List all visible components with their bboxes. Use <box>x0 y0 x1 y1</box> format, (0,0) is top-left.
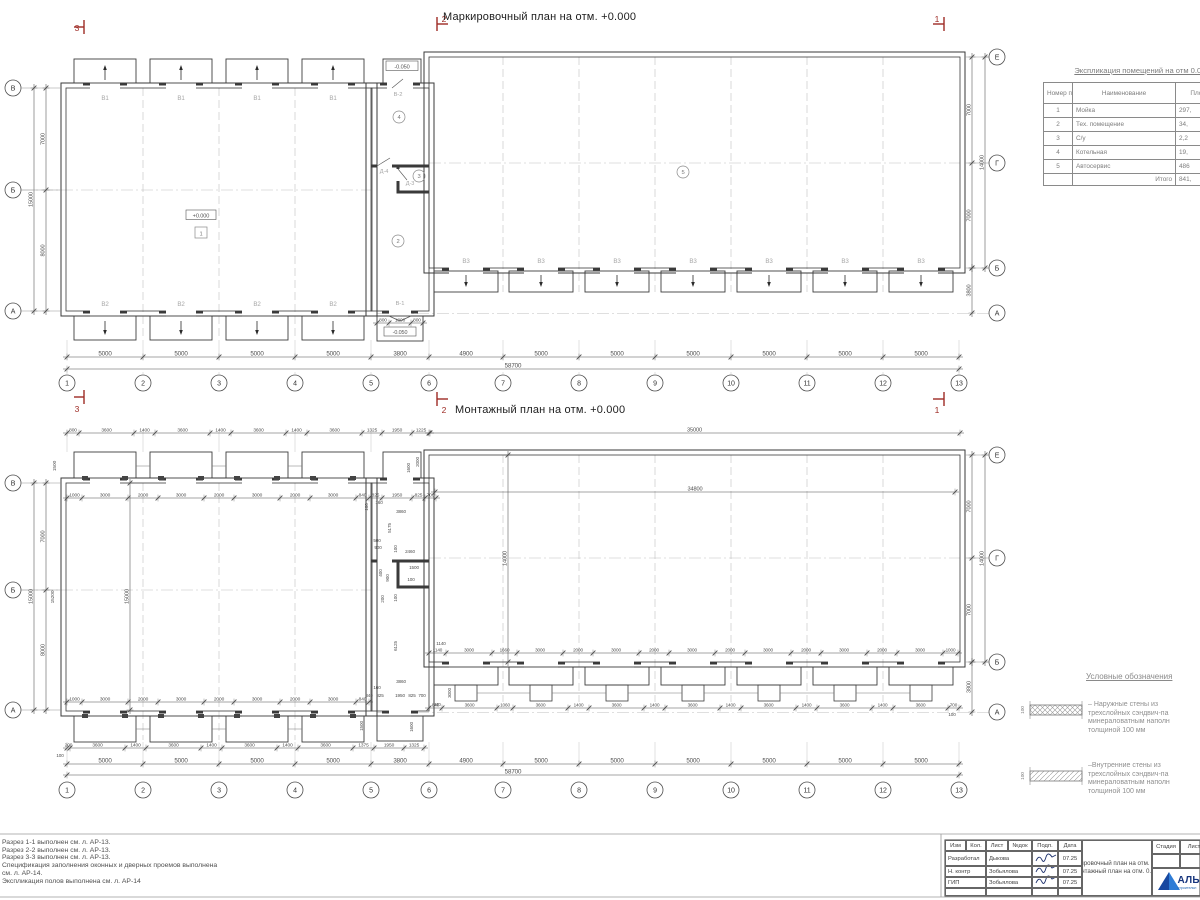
legend-text-line: минераловатным наполн <box>1088 779 1170 788</box>
jamb <box>348 311 355 314</box>
section-number: 1 <box>935 14 940 24</box>
explication-cell: 2 <box>1044 118 1073 132</box>
dimension-text: 3860 <box>396 679 406 684</box>
wall-seg <box>371 560 377 563</box>
dimension-text: 2000 <box>725 647 735 652</box>
jamb <box>897 268 904 271</box>
grid-marker-label: 12 <box>879 788 887 795</box>
dimension-text: 1660 <box>500 647 510 652</box>
porch <box>813 667 877 685</box>
titleblock-header-1: Кол. <box>966 840 986 851</box>
dimension-text: 3800 <box>966 284 972 296</box>
dimension-text: 5000 <box>98 757 112 764</box>
jamb <box>235 311 242 314</box>
section-number: 3 <box>75 23 80 33</box>
explication-cell: 4 <box>1044 146 1073 160</box>
titleblock-name: Зобьялова <box>986 866 1032 877</box>
wall-seg <box>397 561 400 588</box>
dimension-text: 1000 <box>946 647 956 652</box>
grid-marker-label: 13 <box>955 788 963 795</box>
grid-marker-label: 4 <box>293 381 297 388</box>
dimension-text: 5000 <box>534 757 548 764</box>
grid-marker-label: Б <box>995 266 1000 273</box>
direction-arrow <box>691 282 695 287</box>
jamb <box>897 662 904 665</box>
dimension-text: 1400 <box>130 742 141 748</box>
dimension-text: 5000 <box>250 350 264 357</box>
explication-row: 2Тех. помещение34, <box>1044 118 1200 132</box>
dimension-text: 800 <box>413 317 421 323</box>
dimension-text: 3000 <box>464 647 474 652</box>
dimension-text: 800 <box>69 427 77 433</box>
explication-title: Экспликация помещений на отм 0.000 <box>1057 66 1200 75</box>
gate-label: В1 <box>101 95 109 102</box>
grid-marker-label: В <box>11 481 16 488</box>
dimension-text: 1400 <box>574 702 584 707</box>
dimension-text: 200 <box>380 595 385 603</box>
cad-line <box>424 52 965 273</box>
direction-arrow <box>179 330 183 335</box>
jamb <box>442 662 449 665</box>
legend-item-outer-walls: – Наружные стены изтрехслойных сэндвич-п… <box>1088 701 1170 735</box>
jamb <box>710 662 717 665</box>
dimension-text: 7000 <box>40 133 46 145</box>
pier <box>122 476 128 480</box>
dimension-text: 4900 <box>459 350 473 357</box>
explication-header-num: Номер помещ. <box>1044 83 1073 104</box>
titleblock-header-4: Подп. <box>1032 840 1058 851</box>
jamb <box>311 711 318 714</box>
dimension-text: 1800 <box>395 317 406 323</box>
pier <box>198 476 204 480</box>
room-explication-table: Экспликация помещений на отм 0.000 Номер… <box>1043 66 1200 186</box>
direction-arrow <box>539 282 543 287</box>
dimension-text: 7000 <box>966 104 972 116</box>
dimension-text: 2000 <box>649 647 659 652</box>
explication-cell: Автосервис <box>1073 160 1176 174</box>
jamb <box>272 711 279 714</box>
grid-marker-label: 7 <box>501 381 505 388</box>
dimension-text: 100 <box>393 594 398 602</box>
dimension-text: 1325 <box>409 742 420 748</box>
explication-header-area: Площ <box>1176 83 1200 104</box>
grid-marker-label: 8 <box>577 381 581 388</box>
porch <box>737 667 801 685</box>
dimension-text: 2000 <box>214 696 225 702</box>
grid-marker-label: В <box>11 86 16 93</box>
dimension-text: 3000 <box>915 647 925 652</box>
dimension-text: 58700 <box>505 362 522 369</box>
legend: Условные обозначения <box>1020 672 1200 681</box>
dimension-text: 5000 <box>914 757 928 764</box>
dimension-text: 1950 <box>392 492 403 498</box>
titleblock-empty <box>1032 888 1058 896</box>
note-line: Разрез 3-3 выполнен см. л. АР-13. <box>2 854 217 862</box>
grid-marker-label: А <box>995 710 1000 717</box>
dimension-text: 2000 <box>877 647 887 652</box>
titleblock-role: ГИП <box>945 877 986 888</box>
note-line: Разрез 2-2 выполнен см. л. АР-13. <box>2 847 217 855</box>
titleblock-empty <box>1058 888 1082 896</box>
explication-total-label: Итого <box>1073 174 1176 186</box>
jamb <box>83 311 90 314</box>
legend-text-line: трехслойных сэндвич-па <box>1088 710 1170 719</box>
pier <box>234 714 240 718</box>
explication-total-value: 841, <box>1176 174 1200 186</box>
dimension-text: 1325 <box>367 427 378 433</box>
grid-marker-label: А <box>11 309 16 316</box>
direction-arrow <box>843 282 847 287</box>
dimension-text: 2000 <box>290 696 301 702</box>
jamb <box>862 662 869 665</box>
explication-grid: Номер помещ.НаименованиеПлощ1Мойка297,2Т… <box>1043 82 1200 186</box>
porch <box>377 716 423 741</box>
dimension-text: 5000 <box>326 350 340 357</box>
door-label: В-2 <box>394 92 403 98</box>
legend-text-line: толщиной 100 мм <box>1088 727 1170 736</box>
explication-cell: Котельная <box>1073 146 1176 160</box>
titleblock-date: 07.25 <box>1058 866 1082 877</box>
jamb <box>159 711 166 714</box>
dimension-text: 1500 <box>359 721 364 731</box>
explication-cell: 3 <box>1044 132 1073 146</box>
jamb <box>413 83 420 86</box>
jamb <box>196 311 203 314</box>
dimension-text: 200 <box>65 742 73 748</box>
wall-opening <box>387 477 413 483</box>
legend-dim: 100 <box>1020 706 1026 714</box>
dimension-text: 825 <box>408 693 416 698</box>
grid-marker-label: 1 <box>65 381 69 388</box>
pier <box>758 685 780 701</box>
jamb <box>235 711 242 714</box>
porch <box>661 667 725 685</box>
explication-cell: 5 <box>1044 160 1073 174</box>
grid-marker-label: 9 <box>653 788 657 795</box>
gate-label: В3 <box>765 258 773 265</box>
grid-marker-label: 8 <box>577 788 581 795</box>
wall-opening <box>904 267 938 273</box>
jamb <box>669 662 676 665</box>
gate-label: В3 <box>689 258 697 265</box>
gate-label: В2 <box>101 301 109 308</box>
jamb <box>938 662 945 665</box>
wall-opening <box>752 267 786 273</box>
dimension-text: 4900 <box>459 757 473 764</box>
wall-opening <box>828 267 862 273</box>
dimension-text: 5000 <box>762 757 776 764</box>
dimension-text: 3800 <box>393 757 407 764</box>
direction-arrow <box>103 330 107 335</box>
dimension-text: 700 <box>418 693 426 698</box>
grid-marker-label: 5 <box>369 381 373 388</box>
jamb <box>593 268 600 271</box>
dimension-text: 5000 <box>326 757 340 764</box>
door-label: В-1 <box>396 301 405 307</box>
explication-row: 1Мойка297, <box>1044 104 1200 118</box>
plan-top-title: Маркировочный план на отм. +0.000 <box>443 11 636 23</box>
room-number: 5 <box>681 170 684 176</box>
dimension-text: 1400 <box>139 427 150 433</box>
dimension-text: 5000 <box>98 350 112 357</box>
dimension-text: 2000 <box>214 492 225 498</box>
dimension-text: 3800 <box>966 681 972 693</box>
dimension-text: 3600 <box>536 702 546 707</box>
titleblock-empty <box>945 888 986 896</box>
jamb <box>272 311 279 314</box>
jamb <box>413 478 420 481</box>
dimension-text: 1950 <box>392 427 403 433</box>
legend-dim: 100 <box>1020 772 1026 780</box>
dimension-text: 700 <box>950 702 958 707</box>
explication-cell: 297, <box>1176 104 1200 118</box>
dimension-text: 5000 <box>610 350 624 357</box>
porch <box>150 716 212 742</box>
dimension-text: 800 <box>379 317 387 323</box>
grid-marker-label: Г <box>995 556 999 563</box>
grid-marker-label: А <box>995 311 1000 318</box>
dimension-text: 3000 <box>252 696 263 702</box>
dimension-text: 160 <box>375 500 383 505</box>
dimension-text: 34800 <box>687 486 702 492</box>
dimension-text: 100 <box>56 753 64 758</box>
note-line: см. л. АР-14. <box>2 870 217 878</box>
dimension-text: 7000 <box>40 530 46 542</box>
titleblock-header-5: Дата <box>1058 840 1082 851</box>
grid-marker-label: 2 <box>141 788 145 795</box>
titleblock-role: Н. контр <box>945 866 986 877</box>
dimension-text: 3600 <box>465 702 475 707</box>
grid-marker-label: Г <box>995 161 999 168</box>
dimension-text: 900 <box>374 545 382 550</box>
legend-title: Условные обозначения <box>1086 672 1200 681</box>
grid-marker-label: А <box>11 708 16 715</box>
direction-arrow <box>331 65 335 70</box>
direction-arrow <box>179 65 183 70</box>
dimension-text: 1400 <box>206 742 217 748</box>
direction-arrow <box>919 282 923 287</box>
pier <box>82 476 88 480</box>
jamb <box>821 268 828 271</box>
dimension-text: 5000 <box>838 350 852 357</box>
section-number: 3 <box>75 404 80 414</box>
titleblock-date: 07.25 <box>1058 877 1082 888</box>
pier <box>198 714 204 718</box>
dimension-text: 3860 <box>396 509 406 514</box>
grid-marker-label: 10 <box>727 381 735 388</box>
dimension-text: 3000 <box>100 696 111 702</box>
door-label: Д-3 <box>406 181 414 187</box>
dimension-text: 3000 <box>687 647 697 652</box>
titleblock-logo: АЛЬЯстроительн <box>1152 868 1200 896</box>
grid-marker-label: 10 <box>727 788 735 795</box>
jamb <box>483 662 490 665</box>
jamb <box>442 268 449 271</box>
grid-marker-label: 2 <box>141 381 145 388</box>
dimension-text: 6125 <box>393 641 398 651</box>
dimension-text: 1000 <box>69 696 80 702</box>
jamb <box>938 268 945 271</box>
dimension-text: 3000 <box>328 696 339 702</box>
logo-subtext: строительн <box>1177 886 1196 890</box>
titleblock-doc-title: Маркировочный план на отм. 0.000.Монтажн… <box>1082 840 1152 896</box>
cad-drawing: В1В1В1В1В2В2В2В2В3В3В3В3В3В3В3-0.050В-24… <box>0 0 1200 900</box>
pier <box>350 476 356 480</box>
wall-opening <box>600 267 634 273</box>
legend-text-line: –Внутренние стены из <box>1088 762 1170 771</box>
jamb <box>120 311 127 314</box>
dimension-text: 2000 <box>290 492 301 498</box>
dimension-text: 2000 <box>573 647 583 652</box>
gate-label: В3 <box>462 258 470 265</box>
titleblock-signature <box>1032 877 1058 888</box>
dimension-text: 1225 <box>416 427 427 433</box>
dimension-text: 15200 <box>50 590 56 603</box>
room-number: 2 <box>396 239 399 245</box>
dimension-text: 840 <box>359 492 367 498</box>
titleblock-stage-label: Стадия <box>1152 840 1180 854</box>
plan-bottom-title: Монтажный план на отм. +0.000 <box>455 404 625 416</box>
dimension-text: 1400 <box>650 702 660 707</box>
logo-text: АЛЬЯ <box>1177 875 1200 886</box>
sheet-notes: Разрез 1-1 выполнен см. л. АР-13.Разрез … <box>2 839 217 885</box>
porch <box>434 667 498 685</box>
dimension-text: 15000 <box>124 589 130 604</box>
dimension-text: 3600 <box>840 702 850 707</box>
explication-cell: 19, <box>1176 146 1200 160</box>
porch <box>383 59 421 83</box>
porch <box>226 716 288 742</box>
jamb <box>83 711 90 714</box>
dimension-text: 5175 <box>387 523 392 533</box>
pier <box>158 476 164 480</box>
dimension-text: 5000 <box>686 757 700 764</box>
note-line: Разрез 1-1 выполнен см. л. АР-13. <box>2 839 217 847</box>
direction-arrow <box>615 282 619 287</box>
dimension-text: 14000 <box>979 155 985 170</box>
pier <box>455 685 477 701</box>
dimension-text: 1500 <box>409 565 419 570</box>
dimension-text: 3600 <box>244 742 255 748</box>
gate-label: В3 <box>917 258 925 265</box>
porch <box>509 667 573 685</box>
jamb <box>120 711 127 714</box>
porch <box>889 667 953 685</box>
direction-arrow <box>255 330 259 335</box>
drawing-sheet: { "colors": { "line": "#3d3d3d", "wall":… <box>0 0 1200 900</box>
grid-marker-label: 11 <box>803 788 810 795</box>
dimension-text: 1400 <box>282 742 293 748</box>
wall-seg <box>371 165 377 168</box>
titleblock-signature <box>1032 851 1058 866</box>
pier <box>274 714 280 718</box>
dimension-text: 5000 <box>686 350 700 357</box>
gate-label: В1 <box>253 95 261 102</box>
section-number: 2 <box>442 405 447 415</box>
dimension-text: 7000 <box>966 500 972 512</box>
grid-marker-label: 3 <box>217 788 221 795</box>
dimension-text: 1400 <box>215 427 226 433</box>
gate-label: В2 <box>329 301 337 308</box>
dimension-text: 2000 <box>138 696 149 702</box>
legend-text-line: трехслойных сэндвич-па <box>1088 771 1170 780</box>
dimension-text: 2000 <box>138 492 149 498</box>
dimension-text: 5000 <box>914 350 928 357</box>
doc-title-line: Маркировочный план на отм. 0.000. <box>1082 860 1152 868</box>
jamb <box>786 662 793 665</box>
pier <box>234 476 240 480</box>
grid-marker-label: 5 <box>369 788 373 795</box>
room-number: 1 <box>199 232 202 238</box>
dimension-text: 3000 <box>328 492 339 498</box>
porch <box>226 452 288 478</box>
jamb <box>634 662 641 665</box>
dimension-text: 1400 <box>291 427 302 433</box>
jamb <box>821 662 828 665</box>
jamb <box>593 662 600 665</box>
dimension-text: 100 <box>393 545 398 553</box>
dimension-text: 3600 <box>253 427 264 433</box>
explication-cell: Мойка <box>1073 104 1176 118</box>
jamb <box>380 478 387 481</box>
dimension-text: 2000 <box>415 457 420 467</box>
gate-label: В3 <box>537 258 545 265</box>
dimension-text: 3000 <box>176 492 187 498</box>
dimension-text: 3000 <box>763 647 773 652</box>
dimension-text: 3800 <box>393 350 407 357</box>
dimension-text: 1000 <box>69 492 80 498</box>
wall-seg <box>397 191 430 194</box>
dimension-text: 8000 <box>40 644 46 656</box>
porch <box>74 452 136 478</box>
jamb <box>483 268 490 271</box>
explication-cell: Тех. помещение <box>1073 118 1176 132</box>
jamb <box>745 662 752 665</box>
dimension-text: 3600 <box>612 702 622 707</box>
gate-label: В1 <box>177 95 185 102</box>
room-number: 3 <box>417 174 420 180</box>
legend-text-line: – Наружные стены из <box>1088 701 1170 710</box>
grid-marker-label: Е <box>995 55 1000 62</box>
dimension-text: 1140 <box>436 641 446 646</box>
dimension-text: 100 <box>948 712 956 717</box>
section-number: 1 <box>935 405 940 415</box>
legend-item-inner-walls: –Внутренние стены изтрехслойных сэндвич-… <box>1088 762 1170 796</box>
dimension-text: 58700 <box>505 768 522 775</box>
dimension-text: 35000 <box>687 427 702 433</box>
dimension-text: 1140 <box>433 647 443 652</box>
dimension-text: 500 <box>373 538 381 543</box>
explication-cell: С/у <box>1073 132 1176 146</box>
wall-opening <box>524 267 558 273</box>
dimension-text: 900 <box>385 574 390 582</box>
dimension-text: 5000 <box>250 757 264 764</box>
explication-row: 5Автосервис486 <box>1044 160 1200 174</box>
titleblock-header-3: №док <box>1008 840 1032 851</box>
explication-row: 3С/у2,2 <box>1044 132 1200 146</box>
jamb <box>786 268 793 271</box>
jamb <box>159 311 166 314</box>
grid-marker-label: 11 <box>803 381 810 388</box>
dimension-text: 1400 <box>802 702 812 707</box>
doc-title-line: Монтажный план на отм. 0.000 <box>1082 868 1152 876</box>
dimension-text: 840 <box>433 702 441 707</box>
grid-marker-label: 4 <box>293 788 297 795</box>
level-mark: -0.050 <box>393 330 408 336</box>
logo-text-wrap: АЛЬЯстроительн <box>1177 875 1200 890</box>
jamb <box>380 83 387 86</box>
dimension-text: 1950 <box>384 742 395 748</box>
